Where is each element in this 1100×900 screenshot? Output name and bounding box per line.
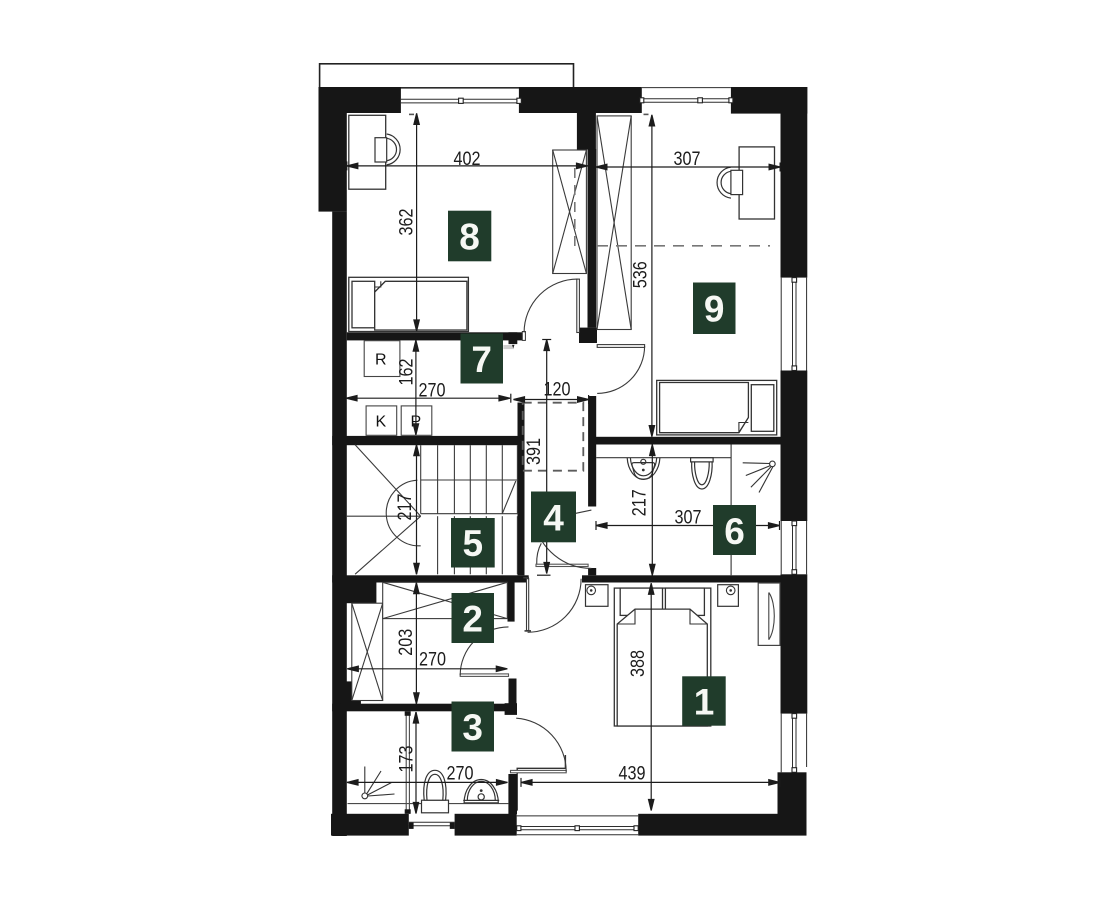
svg-text:7: 7 [471,339,492,380]
svg-text:307: 307 [675,508,702,529]
svg-text:5: 5 [463,523,484,564]
svg-text:2: 2 [462,599,483,640]
svg-text:402: 402 [454,149,481,170]
svg-text:K: K [376,414,387,431]
svg-text:391: 391 [524,438,545,465]
svg-text:388: 388 [628,650,649,677]
svg-text:1: 1 [694,682,715,723]
svg-text:203: 203 [396,629,417,656]
svg-text:536: 536 [631,261,652,288]
svg-text:6: 6 [724,511,745,552]
svg-text:270: 270 [419,381,446,402]
svg-text:162: 162 [397,359,418,386]
svg-text:R: R [375,352,387,369]
svg-text:3: 3 [462,707,483,748]
svg-text:120: 120 [544,380,571,401]
svg-text:9: 9 [704,289,725,330]
svg-text:4: 4 [543,497,564,538]
svg-text:217: 217 [630,489,651,516]
svg-text:362: 362 [397,209,418,236]
svg-text:439: 439 [619,764,646,785]
svg-text:270: 270 [447,764,474,785]
svg-text:307: 307 [674,149,701,170]
svg-text:8: 8 [459,216,480,257]
svg-text:270: 270 [419,650,446,671]
svg-text:217: 217 [395,494,416,521]
svg-text:173: 173 [396,746,417,773]
